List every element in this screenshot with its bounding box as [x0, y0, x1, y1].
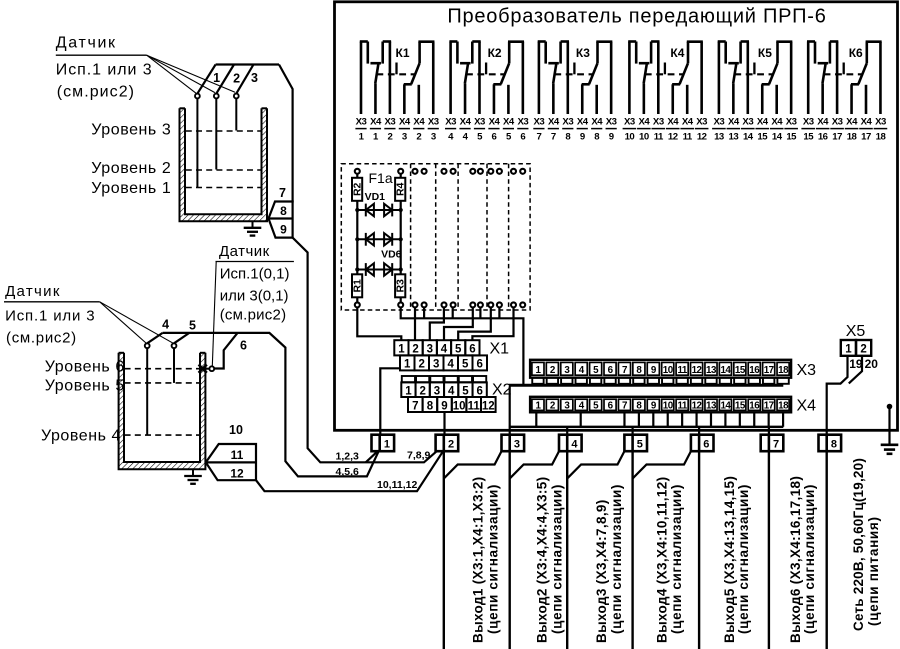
- svg-text:X3: X3: [534, 117, 545, 128]
- svg-text:8: 8: [427, 400, 434, 412]
- svg-text:X4: X4: [728, 117, 740, 128]
- svg-text:X3: X3: [606, 117, 617, 128]
- svg-text:12: 12: [692, 365, 703, 376]
- svg-text:X3: X3: [624, 117, 635, 128]
- svg-text:X3: X3: [445, 117, 456, 128]
- svg-text:14: 14: [743, 132, 754, 143]
- svg-text:16: 16: [818, 132, 828, 143]
- svg-text:X4: X4: [771, 117, 783, 128]
- svg-text:13: 13: [706, 401, 717, 412]
- svg-text:9: 9: [609, 132, 614, 143]
- svg-text:6: 6: [240, 339, 247, 353]
- svg-text:5: 5: [462, 359, 469, 371]
- svg-text:3: 3: [514, 439, 520, 451]
- svg-text:X3: X3: [428, 117, 439, 128]
- svg-text:Исп.1(0,1): Исп.1(0,1): [220, 266, 290, 283]
- svg-text:2: 2: [387, 132, 392, 143]
- svg-text:4: 4: [162, 318, 169, 332]
- svg-text:10: 10: [663, 365, 674, 376]
- svg-text:X4: X4: [797, 398, 817, 415]
- svg-text:X3: X3: [653, 117, 664, 128]
- svg-text:X4: X4: [460, 117, 472, 128]
- svg-text:3: 3: [433, 359, 439, 371]
- svg-text:10: 10: [663, 401, 674, 412]
- svg-text:5: 5: [455, 344, 462, 356]
- svg-text:1: 1: [213, 71, 220, 85]
- svg-text:16: 16: [749, 401, 760, 412]
- svg-text:13: 13: [706, 365, 717, 376]
- svg-text:R4: R4: [395, 182, 407, 196]
- svg-text:X1: X1: [490, 341, 510, 358]
- svg-text:15: 15: [786, 132, 797, 143]
- svg-text:7: 7: [279, 186, 286, 200]
- svg-text:12: 12: [482, 400, 495, 412]
- svg-text:(см.рис2): (см.рис2): [57, 84, 135, 101]
- svg-text:11: 11: [654, 132, 664, 143]
- svg-text:Выход5 (Х3,Х4:13,14,15): Выход5 (Х3,Х4:13,14,15): [722, 476, 737, 643]
- svg-text:7: 7: [773, 439, 779, 451]
- svg-text:4,5,6: 4,5,6: [336, 466, 360, 478]
- svg-text:(цепи сигнализации): (цепи сигнализации): [550, 484, 565, 634]
- svg-text:7: 7: [551, 132, 556, 143]
- svg-text:X3: X3: [875, 117, 886, 128]
- svg-text:7: 7: [536, 132, 541, 143]
- svg-text:12: 12: [697, 132, 707, 143]
- svg-text:2: 2: [419, 385, 425, 397]
- svg-text:Уровень 6: Уровень 6: [45, 358, 125, 375]
- svg-text:11: 11: [468, 400, 481, 412]
- svg-text:X4: X4: [413, 117, 425, 128]
- svg-text:К4: К4: [670, 46, 684, 60]
- svg-text:(см.рис2): (см.рис2): [6, 330, 77, 347]
- svg-text:4: 4: [571, 439, 578, 451]
- svg-text:7,8,9: 7,8,9: [407, 450, 431, 462]
- svg-text:К5: К5: [758, 46, 772, 60]
- svg-text:К1: К1: [396, 46, 410, 60]
- svg-text:Датчик: Датчик: [5, 283, 61, 300]
- svg-text:5: 5: [189, 319, 196, 333]
- svg-text:1: 1: [405, 385, 412, 397]
- svg-text:6: 6: [492, 132, 497, 143]
- svg-text:9: 9: [580, 132, 585, 143]
- svg-text:X4: X4: [591, 117, 603, 128]
- svg-text:Уровень 4: Уровень 4: [41, 427, 121, 444]
- svg-text:Сеть 220В, 50,60Гц(19,20): Сеть 220В, 50,60Гц(19,20): [851, 458, 866, 631]
- svg-text:VD1: VD1: [365, 191, 386, 203]
- svg-text:10,11,12: 10,11,12: [377, 479, 417, 491]
- svg-text:6: 6: [477, 359, 483, 371]
- svg-text:X3: X3: [385, 117, 396, 128]
- svg-text:X4: X4: [370, 117, 382, 128]
- svg-text:Преобразователь передающий ПРП: Преобразователь передающий ПРП-6: [447, 6, 826, 28]
- svg-text:14: 14: [772, 132, 783, 143]
- svg-text:(цепи питания): (цепи питания): [866, 516, 881, 626]
- svg-text:10: 10: [639, 132, 649, 143]
- svg-text:10: 10: [453, 400, 466, 412]
- svg-text:16: 16: [749, 365, 760, 376]
- svg-text:(цепи сигнализации): (цепи сигнализации): [802, 484, 817, 634]
- svg-text:Уровень 1: Уровень 1: [91, 180, 171, 197]
- svg-text:15: 15: [757, 132, 768, 143]
- svg-text:11: 11: [683, 132, 693, 143]
- svg-text:3: 3: [402, 132, 407, 143]
- svg-text:К2: К2: [488, 46, 502, 60]
- svg-text:18: 18: [847, 132, 858, 143]
- svg-text:14: 14: [720, 365, 731, 376]
- svg-text:(цепи сигнализации): (цепи сигнализации): [669, 484, 684, 634]
- svg-text:19: 19: [849, 357, 863, 371]
- svg-text:11: 11: [231, 448, 244, 462]
- svg-text:Уровень 3: Уровень 3: [91, 121, 171, 138]
- svg-text:7: 7: [412, 400, 418, 412]
- svg-text:Уровень 5: Уровень 5: [45, 377, 125, 394]
- svg-text:F1a: F1a: [369, 170, 393, 186]
- svg-text:9: 9: [441, 400, 447, 412]
- svg-text:Уровень 2: Уровень 2: [91, 160, 171, 177]
- svg-text:6: 6: [469, 344, 475, 356]
- svg-text:X3: X3: [517, 117, 528, 128]
- svg-text:8: 8: [280, 204, 287, 218]
- svg-text:3: 3: [427, 344, 433, 356]
- svg-text:4: 4: [448, 385, 455, 397]
- svg-text:1: 1: [384, 439, 390, 451]
- svg-text:14: 14: [720, 401, 731, 412]
- svg-text:X4: X4: [757, 117, 769, 128]
- svg-text:X3: X3: [803, 117, 814, 128]
- svg-text:11: 11: [677, 401, 687, 412]
- svg-text:R1: R1: [352, 279, 364, 293]
- svg-text:X3: X3: [562, 117, 573, 128]
- svg-text:12: 12: [668, 132, 678, 143]
- svg-text:R3: R3: [395, 279, 407, 293]
- svg-text:20: 20: [865, 357, 879, 371]
- svg-text:(цепи сигнализации): (цепи сигнализации): [486, 484, 501, 634]
- svg-text:X4: X4: [861, 117, 873, 128]
- svg-text:X3: X3: [742, 117, 753, 128]
- svg-text:1: 1: [398, 344, 405, 356]
- svg-text:Датчик: Датчик: [56, 35, 117, 52]
- svg-text:15: 15: [735, 365, 746, 376]
- svg-text:1: 1: [404, 359, 411, 371]
- svg-text:X3: X3: [714, 117, 725, 128]
- svg-text:13: 13: [714, 132, 724, 143]
- svg-text:4: 4: [448, 359, 455, 371]
- svg-text:X4: X4: [682, 117, 694, 128]
- svg-text:Выход4 (Х3,Х4:10,11,12): Выход4 (Х3,Х4:10,11,12): [655, 477, 670, 643]
- svg-text:2: 2: [412, 344, 418, 356]
- svg-text:10: 10: [229, 423, 243, 437]
- svg-text:2: 2: [419, 359, 425, 371]
- svg-text:15: 15: [803, 132, 814, 143]
- svg-text:(цепи сигнализации): (цепи сигнализации): [736, 484, 751, 634]
- svg-text:X3: X3: [832, 117, 843, 128]
- svg-text:Исп.1 или 3: Исп.1 или 3: [5, 308, 95, 325]
- svg-text:3: 3: [251, 71, 258, 85]
- svg-text:1,2,3: 1,2,3: [336, 450, 360, 462]
- svg-text:18: 18: [876, 132, 887, 143]
- svg-text:X4: X4: [638, 117, 650, 128]
- svg-text:X3: X3: [797, 362, 817, 379]
- svg-text:X4: X4: [503, 117, 515, 128]
- svg-text:2: 2: [448, 439, 454, 451]
- svg-text:X4: X4: [667, 117, 679, 128]
- svg-text:15: 15: [735, 401, 746, 412]
- svg-text:12: 12: [692, 401, 703, 412]
- svg-text:18: 18: [778, 365, 789, 376]
- svg-text:X3: X3: [356, 117, 367, 128]
- svg-text:17: 17: [764, 365, 775, 376]
- svg-text:К3: К3: [576, 46, 590, 60]
- svg-text:17: 17: [832, 132, 842, 143]
- svg-text:13: 13: [729, 132, 739, 143]
- svg-text:X4: X4: [817, 117, 829, 128]
- svg-text:11: 11: [677, 365, 687, 376]
- svg-text:Датчик: Датчик: [219, 243, 270, 260]
- svg-text:X4: X4: [577, 117, 589, 128]
- svg-text:X3: X3: [696, 117, 707, 128]
- svg-text:Выход1 (Х3:1,Х4:1,Х3:2): Выход1 (Х3:1,Х4:1,Х3:2): [471, 477, 486, 643]
- svg-text:X4: X4: [548, 117, 560, 128]
- svg-text:17: 17: [861, 132, 871, 143]
- svg-text:Выход3 (Х3,Х4:7,8,9): Выход3 (Х3,Х4:7,8,9): [594, 499, 609, 643]
- svg-text:(цепи сигнализации): (цепи сигнализации): [609, 484, 624, 634]
- svg-text:10: 10: [625, 132, 635, 143]
- svg-text:X4: X4: [399, 117, 411, 128]
- svg-text:6: 6: [703, 439, 709, 451]
- svg-text:(см.рис2): (см.рис2): [220, 307, 287, 324]
- svg-text:8: 8: [831, 439, 837, 451]
- svg-text:3: 3: [434, 385, 440, 397]
- svg-text:X3: X3: [474, 117, 485, 128]
- svg-text:5: 5: [462, 385, 469, 397]
- svg-text:17: 17: [764, 401, 775, 412]
- svg-text:1: 1: [845, 343, 852, 355]
- svg-text:18: 18: [778, 401, 789, 412]
- svg-text:X5: X5: [846, 323, 866, 340]
- svg-text:R2: R2: [352, 182, 364, 196]
- svg-text:2: 2: [416, 132, 421, 143]
- svg-text:4: 4: [441, 344, 448, 356]
- svg-text:К6: К6: [849, 46, 863, 60]
- svg-text:VD6: VD6: [381, 249, 402, 261]
- svg-text:X3: X3: [786, 117, 797, 128]
- svg-text:12: 12: [230, 467, 244, 481]
- svg-text:5: 5: [637, 439, 643, 451]
- svg-text:X4: X4: [846, 117, 858, 128]
- svg-text:6: 6: [476, 385, 482, 397]
- svg-text:2: 2: [860, 343, 866, 355]
- svg-text:6: 6: [520, 132, 525, 143]
- svg-text:9: 9: [280, 223, 287, 237]
- svg-text:Исп.1 или 3: Исп.1 или 3: [56, 62, 153, 79]
- svg-text:2: 2: [233, 72, 240, 86]
- svg-text:3: 3: [431, 132, 436, 143]
- svg-text:Выход6 (Х3,Х4:16,17,18): Выход6 (Х3,Х4:16,17,18): [788, 476, 803, 643]
- svg-text:X4: X4: [489, 117, 501, 128]
- svg-text:или 3(0,1): или 3(0,1): [220, 287, 289, 304]
- svg-text:Выход2 (Х3:4,Х4:4,Х3:5): Выход2 (Х3:4,Х4:4,Х3:5): [535, 477, 550, 643]
